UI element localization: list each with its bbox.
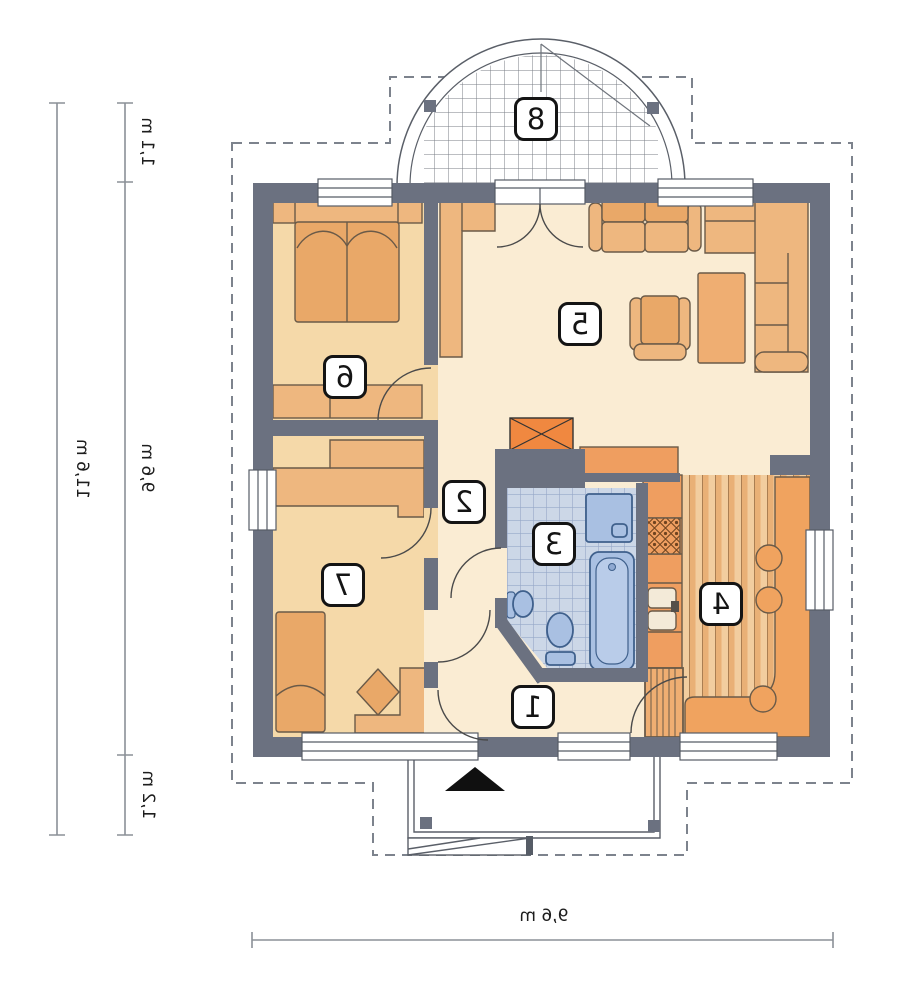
- coffee-table: [698, 273, 745, 363]
- washbasin: [513, 591, 533, 617]
- room-label-8: 8: [514, 97, 558, 141]
- dimension-left-bottom: 1,2 m: [138, 771, 158, 820]
- room-label-6: 6: [323, 355, 367, 399]
- fireplace: [510, 418, 573, 450]
- dimension-left-total: 11,6 m: [72, 439, 92, 499]
- room-label-4: 4: [699, 582, 743, 626]
- single-bed: [276, 612, 325, 732]
- room-number: 7: [334, 568, 352, 602]
- room-number: 8: [527, 102, 545, 136]
- stool: [756, 545, 782, 571]
- room-number: 3: [545, 527, 563, 561]
- room-label-5: 5: [558, 302, 602, 346]
- terrace-door: [495, 180, 585, 204]
- window: [318, 179, 392, 206]
- room-label-3: 3: [532, 522, 576, 566]
- room-number: 2: [455, 485, 473, 519]
- counter-top: [580, 447, 678, 475]
- stool: [750, 686, 776, 712]
- dimension-left-middle: 9,6 m: [137, 444, 157, 493]
- dimension-bottom-width: 9,6 m: [520, 906, 569, 926]
- room-number: 6: [336, 360, 354, 394]
- room-label-2: 2: [442, 480, 486, 524]
- entrance-arrow-icon: [445, 767, 505, 791]
- floor-plan-page: 8 6 5 2 3 7 1 4 11,6 m 1,1 m 9,6 m 1,2 m…: [0, 0, 916, 1000]
- hob: [645, 518, 680, 554]
- window: [249, 470, 276, 530]
- counter-side: [643, 475, 682, 668]
- room-number: 1: [524, 690, 542, 724]
- room-number: 4: [712, 587, 730, 621]
- stool: [756, 587, 782, 613]
- room-label-1: 1: [511, 685, 555, 729]
- porch: [408, 757, 660, 855]
- room-number: 5: [571, 307, 589, 341]
- toilet: [547, 613, 573, 647]
- entrance-door: [558, 733, 630, 760]
- faucet: [671, 601, 679, 612]
- window: [806, 530, 833, 610]
- window: [302, 733, 478, 760]
- window: [658, 179, 753, 206]
- room-label-7: 7: [321, 563, 365, 607]
- dimension-left-top: 1,1 m: [137, 118, 157, 167]
- window: [680, 733, 777, 760]
